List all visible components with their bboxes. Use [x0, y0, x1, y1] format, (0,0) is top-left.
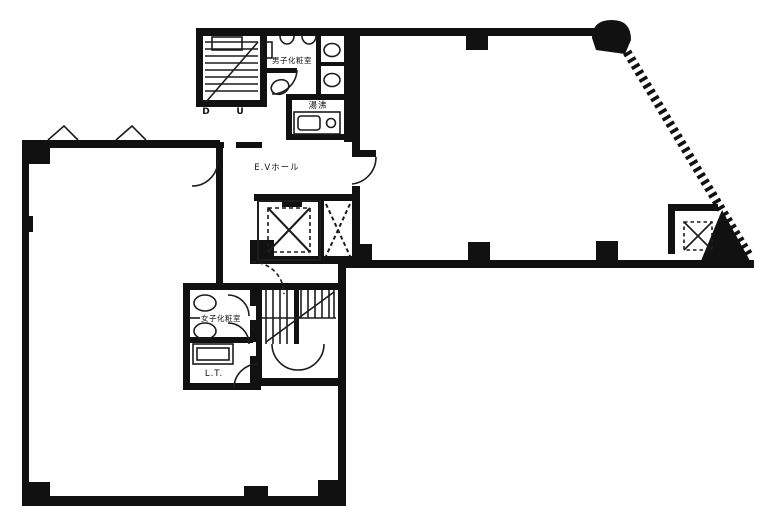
- kitchenette-counter: [294, 112, 340, 134]
- lower-stair-rail-bar: [294, 288, 299, 344]
- toilet-icon: [324, 74, 340, 87]
- column-bottom-right: [318, 480, 346, 506]
- wall-top: [196, 28, 616, 36]
- column-bottom-wall-c: [596, 241, 618, 260]
- toilet-icon: [194, 323, 216, 339]
- service-shaft: [684, 222, 712, 250]
- stair-down-label: D: [202, 107, 209, 117]
- column-bottom-left: [22, 482, 50, 506]
- elevator-shaft-left: [258, 201, 320, 260]
- wall-mens-stall-divider: [316, 62, 350, 66]
- toilet-icon: [194, 295, 216, 311]
- wall-left: [22, 140, 29, 506]
- wall-womens-right-a: [250, 290, 256, 306]
- urinal-icon: [280, 36, 294, 44]
- womens-restroom-label: 女子化粧室: [201, 313, 241, 323]
- wall-womens-top: [183, 283, 346, 290]
- wall-stair-left: [196, 28, 203, 107]
- utility-room-label: L.T.: [205, 369, 223, 379]
- wall-vestibule-b: [236, 142, 262, 148]
- wall-kitchenette-left: [286, 94, 292, 140]
- wall-elevator-top: [254, 194, 358, 201]
- kitchenette-label: 湯沸: [308, 100, 327, 111]
- toilet-icon: [324, 44, 340, 57]
- stair-turn-rail: [272, 344, 324, 370]
- wall-right-wing-left-upper: [352, 36, 360, 156]
- door-arc: [228, 295, 249, 316]
- floor-plan-page: 男子化粧室 湯沸 E.Vホール 女子化粧室 L.T. D U: [0, 0, 774, 528]
- urinal-icon: [302, 36, 316, 44]
- corner-triangle: [698, 210, 754, 268]
- wall-mens-stall: [316, 35, 321, 98]
- floor-plan-drawing: 男子化粧室 湯沸 E.Vホール 女子化粧室 L.T. D U: [0, 0, 774, 528]
- window-marks: [48, 126, 146, 140]
- wall-womens-utility-divider: [183, 337, 253, 343]
- door-stub: [352, 150, 376, 157]
- walls-and-columns: [22, 20, 754, 506]
- wall-womens-right-c: [250, 356, 256, 383]
- wall-bottom: [22, 496, 346, 506]
- column-bottom-wall-a: [352, 244, 372, 260]
- mens-restroom-fixtures: [262, 36, 340, 97]
- wall-kitchenette-bottom: [286, 134, 352, 140]
- wall-stair-toilet-divider: [260, 28, 267, 107]
- wall-womens-right-b: [250, 320, 256, 342]
- wall-lower-stair-bottom: [256, 378, 346, 386]
- stair-up-label: U: [236, 107, 243, 117]
- stair-break-line: [266, 292, 334, 342]
- stair-landing-box: [212, 37, 242, 50]
- wall-left-wing-top: [22, 140, 220, 148]
- column-top-wall: [466, 36, 488, 50]
- column-left-mid: [22, 216, 33, 232]
- door-arc-left-room: [192, 160, 218, 186]
- corner-column-rounded: [592, 20, 631, 54]
- wall-lower-stair-right: [338, 262, 346, 385]
- utility-room-fixtures: [193, 344, 258, 388]
- fixtures-and-lines: [48, 36, 712, 388]
- column-bottom-mid: [244, 486, 268, 504]
- wall-mens-sub: [267, 68, 297, 73]
- door-arc-right-wing: [352, 157, 376, 184]
- column-bottom-wall-b: [468, 242, 490, 260]
- wall-womens-left: [183, 283, 190, 390]
- elevator-shaft-right: [326, 204, 350, 256]
- wall-right-wing-bottom: [340, 260, 754, 268]
- wall-womens-bottom: [183, 383, 261, 390]
- mens-restroom-label: 男子化粧室: [272, 55, 312, 65]
- top-staircase: [205, 37, 258, 102]
- wall-service-room-left: [668, 204, 675, 254]
- stair-break-line: [206, 42, 258, 102]
- wall-core-right: [344, 30, 352, 142]
- wall-service-room-top: [668, 204, 718, 211]
- elevator-hall-label: E.Vホール: [254, 163, 299, 173]
